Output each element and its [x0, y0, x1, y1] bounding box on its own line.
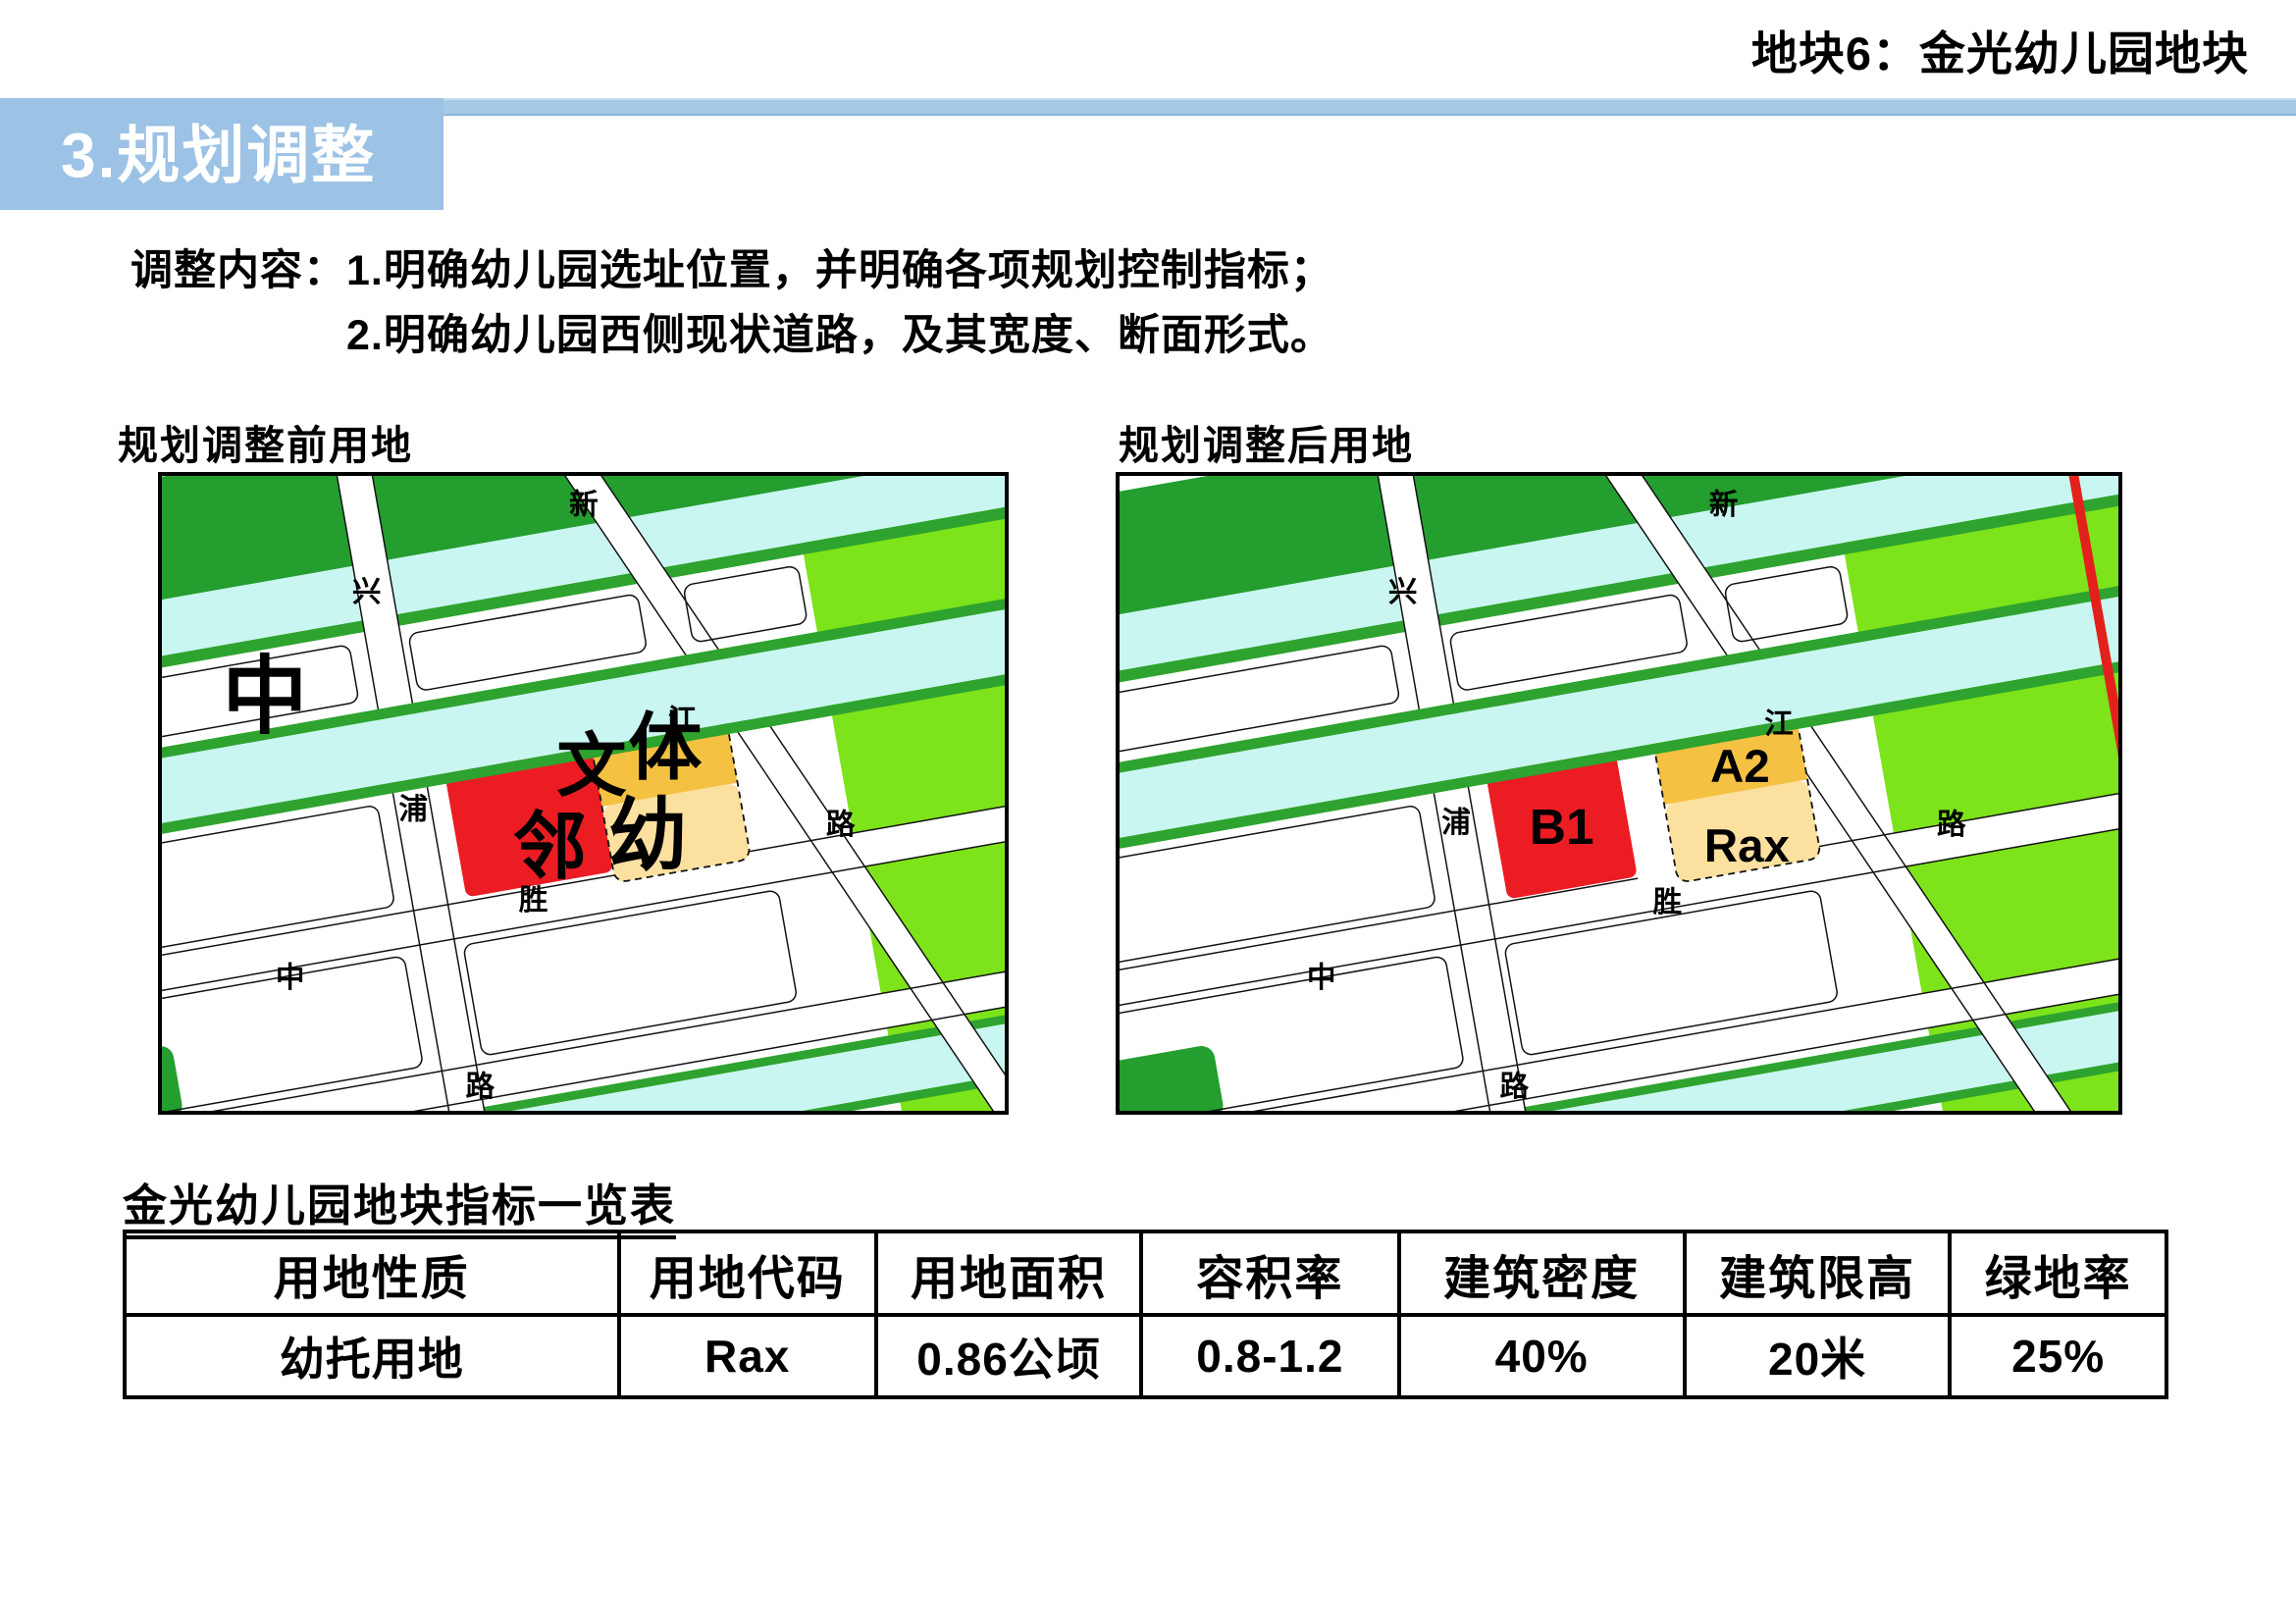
cell-land-use: 幼托用地: [125, 1315, 619, 1397]
road-label-xing: 兴: [352, 576, 382, 608]
landuse-label-you: 幼: [608, 792, 688, 880]
road-label-zhong: 中: [276, 962, 305, 994]
indicator-table: 用地性质 用地代码 用地面积 容积率 建筑密度 建筑限高 绿地率 幼托用地 Ra…: [123, 1230, 2168, 1399]
plot-heading: 地块6：金光幼儿园地块: [1751, 16, 2249, 83]
cell-land-area: 0.86公顷: [876, 1315, 1142, 1397]
road-label-sheng: 胜: [1653, 886, 1683, 918]
table-row: 幼托用地 Rax 0.86公顷 0.8-1.2 40% 20米 25%: [125, 1315, 2166, 1397]
cell-height-limit: 20米: [1685, 1315, 1951, 1397]
map-before-svg: 新 兴 江 路 胜 中 路 浦 中 文 体 幼 邻: [162, 476, 1005, 1111]
adjustment-line-1: 1.明确幼儿园选址位置，并明确各项规划控制指标；: [346, 238, 1333, 303]
road-label-lu-right: 路: [1937, 809, 1966, 841]
landuse-label-lin: 邻: [513, 805, 587, 887]
cell-land-code: Rax: [619, 1315, 876, 1397]
road-label-lu-bottom: 路: [1500, 1071, 1530, 1103]
map-before: 新 兴 江 路 胜 中 路 浦 中 文 体 幼 邻: [158, 472, 1009, 1115]
section-title: 3.规划调整: [61, 105, 376, 195]
plot-label-a2: A2: [1710, 741, 1770, 793]
road-label-xin: 新: [1709, 489, 1739, 521]
road-label-xin: 新: [569, 489, 599, 521]
cell-far: 0.8-1.2: [1141, 1315, 1398, 1397]
document-page: 地块6：金光幼儿园地块 3.规划调整 调整内容： 1.明确幼儿园选址位置，并明确…: [0, 0, 2296, 1624]
landuse-label-zhong-big: 中: [223, 650, 308, 745]
road-label-lu-right: 路: [826, 809, 856, 841]
col-header-far: 容积率: [1141, 1231, 1398, 1315]
plot-label-rax: Rax: [1704, 820, 1791, 872]
road-label-pu: 浦: [1441, 807, 1471, 839]
adjustment-label: 调整内容：: [130, 238, 346, 303]
adjustment-line-2: 2.明确幼儿园西侧现状道路，及其宽度、断面形式。: [346, 303, 1333, 368]
road-label-jiang: 江: [1764, 707, 1794, 740]
cell-building-density: 40%: [1399, 1315, 1685, 1397]
col-header-land-area: 用地面积: [876, 1231, 1142, 1315]
col-header-land-use: 用地性质: [125, 1231, 619, 1315]
col-header-land-code: 用地代码: [619, 1231, 876, 1315]
map-after: 新 兴 江 路 胜 中 路 浦 B1 A2 Rax: [1116, 472, 2122, 1115]
map-after-svg: 新 兴 江 路 胜 中 路 浦 B1 A2 Rax: [1120, 476, 2118, 1111]
road-label-pu: 浦: [398, 793, 428, 825]
cell-green-ratio: 25%: [1950, 1315, 2166, 1397]
road-label-zhong: 中: [1307, 962, 1336, 994]
table-header-row: 用地性质 用地代码 用地面积 容积率 建筑密度 建筑限高 绿地率: [125, 1231, 2166, 1315]
col-header-green-ratio: 绿地率: [1950, 1231, 2166, 1315]
road-label-sheng: 胜: [519, 884, 548, 917]
road-label-xing: 兴: [1388, 576, 1418, 608]
map-before-caption: 规划调整前用地: [118, 412, 413, 471]
plot-label-b1: B1: [1530, 799, 1594, 855]
section-title-block: 3.规划调整: [0, 98, 444, 210]
landuse-label-ti: 体: [628, 707, 702, 789]
col-header-height-limit: 建筑限高: [1685, 1231, 1951, 1315]
col-header-building-density: 建筑密度: [1399, 1231, 1685, 1315]
map-after-caption: 规划调整后用地: [1119, 412, 1414, 471]
road-label-lu-bottom: 路: [465, 1071, 495, 1103]
adjustment-content: 调整内容： 1.明确幼儿园选址位置，并明确各项规划控制指标； 2.明确幼儿园西侧…: [130, 238, 1333, 368]
